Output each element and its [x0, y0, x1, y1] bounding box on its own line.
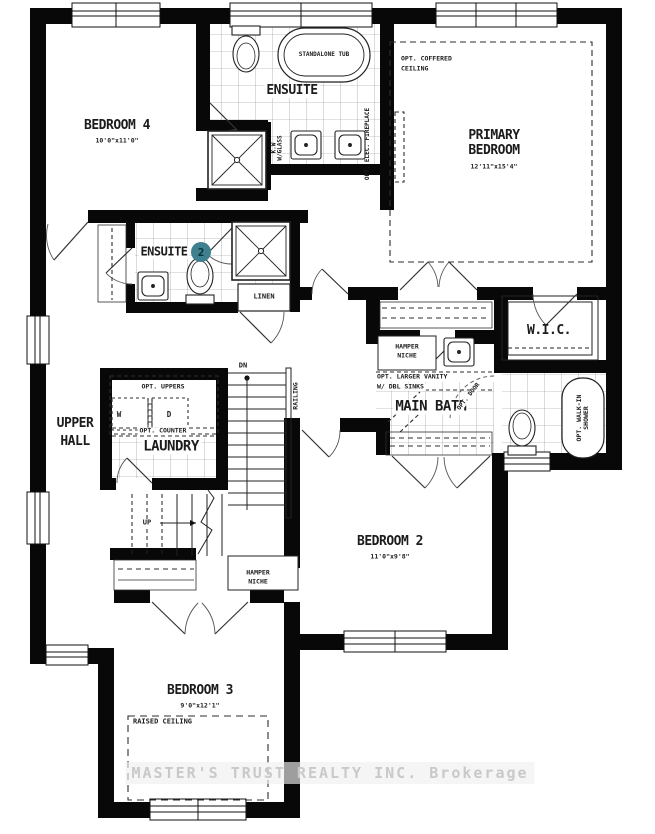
window-top-ensuite [230, 3, 372, 27]
hamper-niche-bath-label-1: HAMPER [395, 344, 418, 351]
door-linen [240, 312, 284, 343]
standalone-tub-label: STANDALONE TUB [299, 52, 350, 58]
sink-ensuite2-room [138, 272, 168, 300]
window-left-hall [27, 316, 49, 364]
window-bedroom3 [150, 799, 246, 820]
door-wic [533, 294, 577, 325]
primary-bedroom-label-1: PRIMARY [468, 129, 519, 143]
toilet-ensuite [232, 26, 260, 72]
opt-uppers-label: OPT. UPPERS [139, 384, 186, 391]
bedroom3-dims: 9'0"x12'1" [180, 703, 219, 710]
primary-bedroom-label-2: BEDROOM [468, 144, 519, 158]
ensuite-label: ENSUITE [264, 84, 319, 98]
stairs-dn-label: DN [239, 362, 247, 369]
toilet-main-bath [508, 410, 536, 455]
door-vestibule [312, 269, 348, 294]
bedroom2-dims: 11'0"x9'8" [370, 554, 409, 561]
upper-hall-label-1: UPPER [57, 417, 94, 431]
raised-ceiling-outline [128, 716, 268, 800]
laundry-label: LAUNDRY [141, 440, 201, 455]
door-bedroom2-closet [392, 456, 490, 488]
dryer-label: D [167, 411, 172, 419]
stair-break-line [198, 490, 214, 554]
ensuite2-number: 2 [198, 246, 205, 259]
window-bedroom2 [344, 631, 446, 652]
primary-bedroom-dims: 12'11"x15'4" [471, 164, 518, 171]
coffered-ceiling-label-1: OPT. COFFERED [401, 56, 452, 63]
door-bedroom4 [46, 222, 88, 260]
window-top-bedroom4 [72, 3, 160, 27]
door-hall-bedroom2 [302, 430, 340, 457]
toilet-ensuite2 [186, 258, 214, 304]
brokerage-watermark: MASTER'S TRUST REALTY INC. Brokerage [125, 762, 534, 784]
opt-vanity-label-2: W/ DBL SINKS [375, 384, 426, 391]
closet-strip-bedroom3 [114, 560, 196, 590]
fireplace-label: OPT. ELEC. FIREPLACE [365, 108, 371, 180]
hamper-niche-bed2-label-1: HAMPER [246, 570, 269, 577]
fireplace-outline [395, 112, 404, 182]
door-ensuite2 [106, 248, 132, 284]
coffered-ceiling-label-2: CEILING [401, 66, 428, 73]
ensuite2-shower [232, 222, 290, 280]
stairs-up-label: UP [141, 519, 153, 526]
ensuite2-number-badge: 2 [191, 242, 211, 262]
window-left-lower [27, 492, 49, 544]
up-arrowhead [190, 520, 196, 526]
ensuite2-label: ENSUITE [138, 246, 189, 259]
knee-wall-glass-label: K.W W/GLASS [272, 135, 285, 160]
sink-ensuite-1 [291, 131, 321, 159]
sink-main-bath [444, 338, 474, 366]
walkin-shower-label-line2: SHOWER [583, 395, 590, 442]
window-top-primary [436, 3, 557, 27]
bedroom4-dims: 10'0"x11'0" [95, 138, 138, 145]
upper-hall-label-2: HALL [60, 435, 89, 449]
raised-ceiling-label: RAISED CEILING [131, 718, 194, 725]
wic-label: W.I.C. [527, 324, 571, 338]
washer-label: W [117, 411, 122, 419]
knee-wall-label-line2: W/GLASS [278, 135, 284, 160]
ensuite-shower [208, 131, 266, 189]
bedroom3-label: BEDROOM 3 [167, 684, 233, 698]
floor-plan: BEDROOM 4 10'0"x11'0" ENSUITE STANDALONE… [0, 0, 655, 834]
laundry-ladder [148, 398, 152, 430]
bedroom2-label: BEDROOM 2 [357, 535, 423, 549]
window-step [46, 645, 88, 665]
linen-label: LINEN [253, 293, 274, 300]
hamper-niche-bed2-label-2: NICHE [248, 579, 268, 586]
closet-strip-1 [380, 302, 492, 328]
railing-label: RAILING [293, 382, 300, 409]
door-bedroom3-double [152, 602, 248, 634]
hamper-niche-bath-label-2: NICHE [397, 353, 417, 360]
opt-vanity-label-1: OPT. LARGER VANITY [375, 374, 449, 381]
walkin-shower-label: OPT. WALK-IN SHOWER [576, 395, 590, 442]
sink-ensuite-2 [335, 131, 365, 159]
opt-counter-label: OPT. COUNTER [138, 428, 189, 435]
door-primary-double [400, 262, 477, 290]
bedroom4-label: BEDROOM 4 [84, 119, 150, 133]
